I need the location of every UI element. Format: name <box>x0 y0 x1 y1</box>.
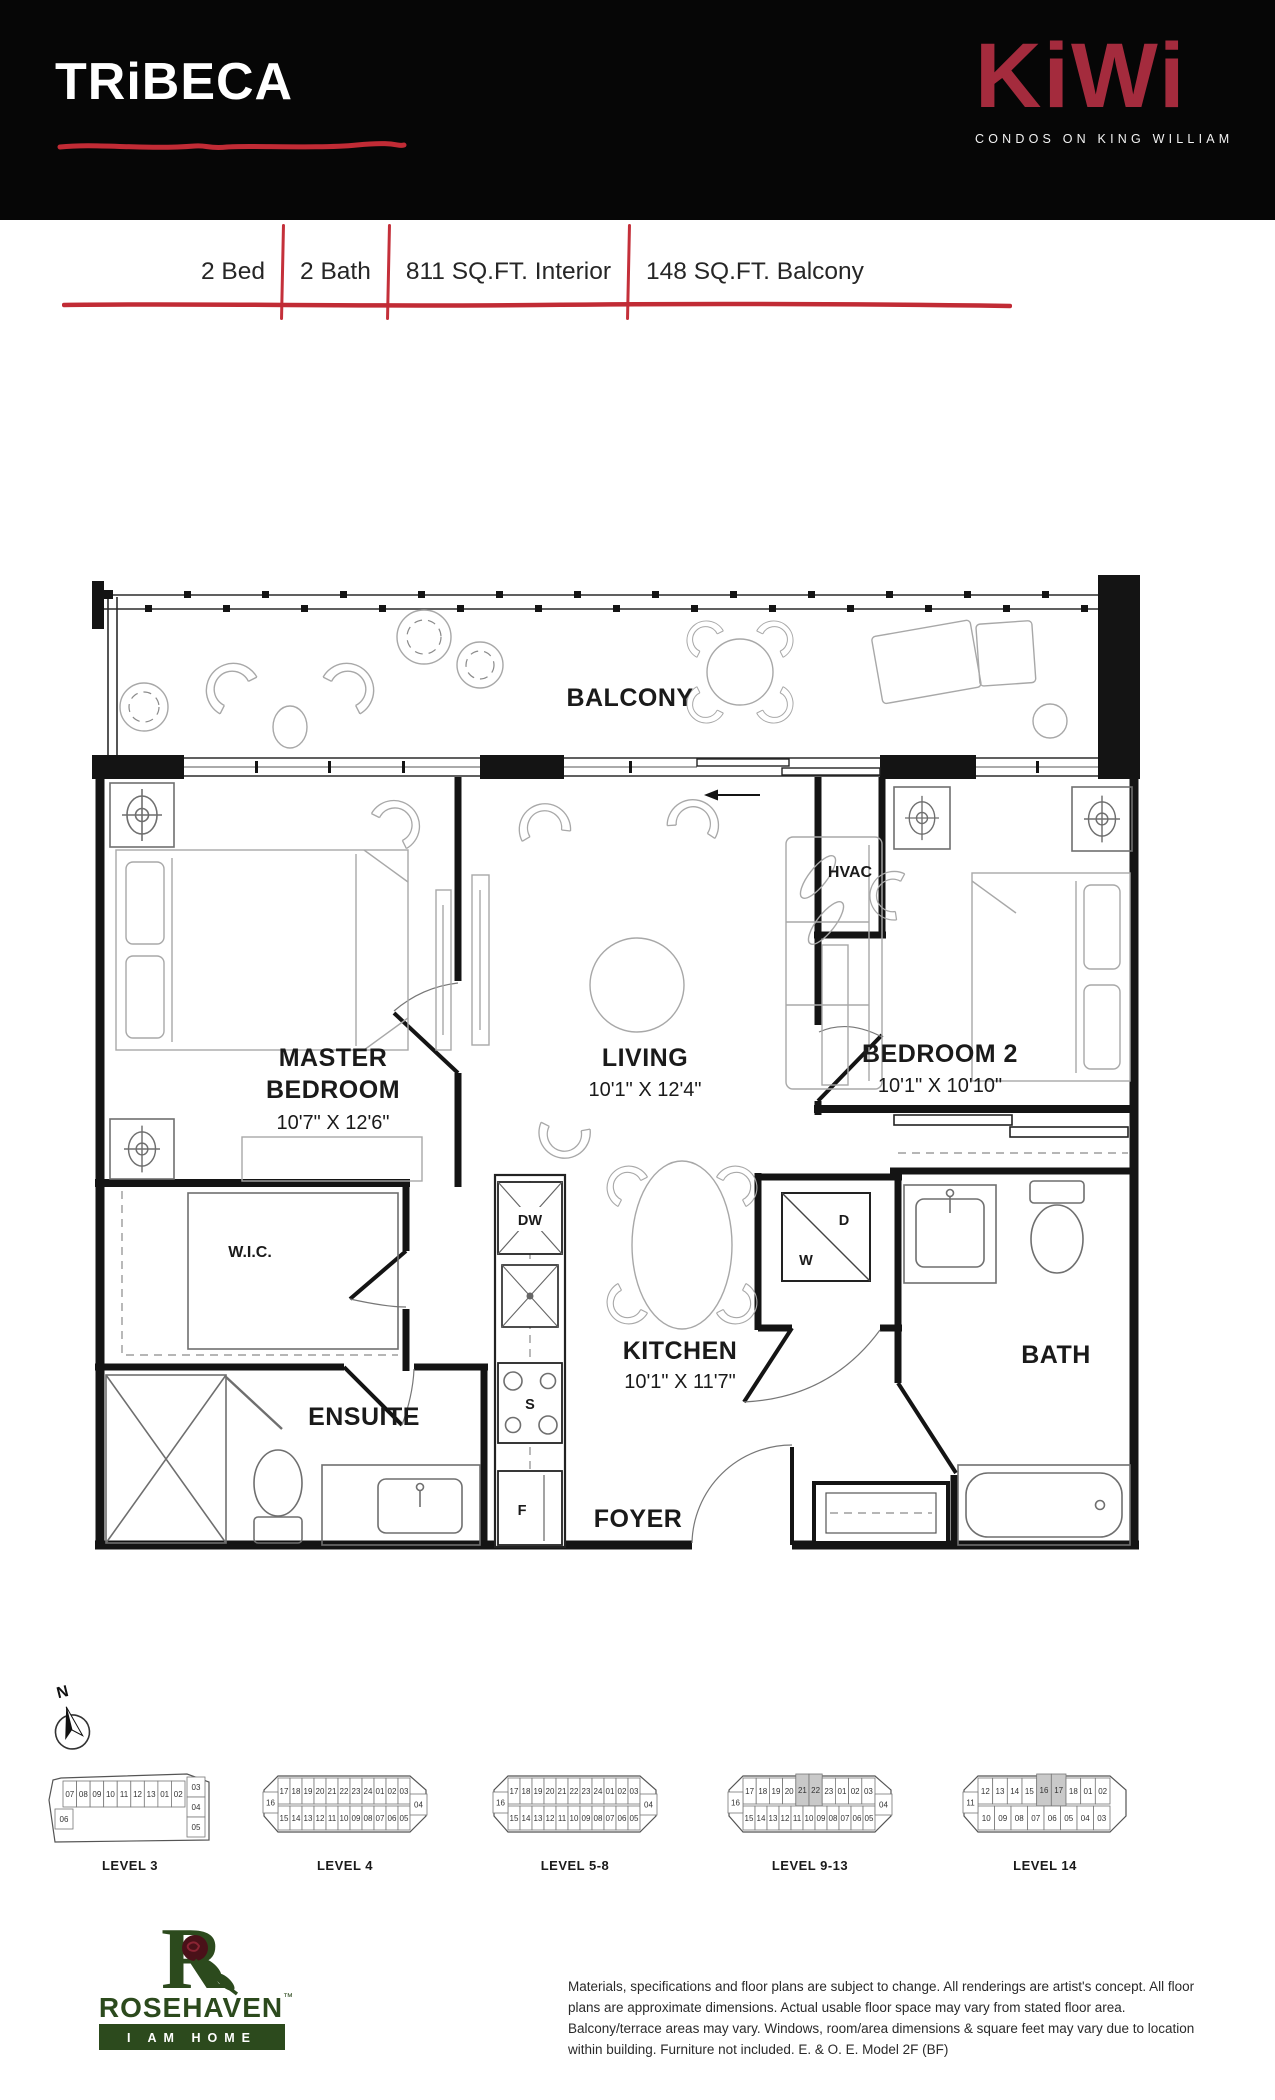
svg-text:13: 13 <box>996 1787 1005 1796</box>
coffee-table-icon <box>590 938 684 1032</box>
chair-icon <box>515 799 572 842</box>
room-label-balcony: BALCONY <box>566 684 693 712</box>
kiwi-logo-name: KiWi <box>975 30 1215 122</box>
svg-text:08: 08 <box>829 1814 838 1823</box>
patio-table-icon <box>707 639 773 705</box>
svg-text:09: 09 <box>817 1814 826 1823</box>
side-table-icon <box>1033 704 1067 738</box>
svg-text:23: 23 <box>824 1787 833 1796</box>
kiwi-logo-tagline: CONDOS ON KING WILLIAM <box>975 132 1215 146</box>
svg-text:18: 18 <box>292 1787 301 1796</box>
svg-text:10: 10 <box>570 1814 579 1823</box>
rosehaven-logo: R ROSEHAVEN ™ I AM HOME <box>95 1912 295 2054</box>
room-label-master-1: MASTER <box>279 1044 388 1072</box>
svg-text:14: 14 <box>757 1814 766 1823</box>
svg-text:18: 18 <box>1069 1787 1078 1796</box>
toilet-icon <box>254 1450 302 1543</box>
svg-text:05: 05 <box>400 1814 409 1823</box>
level-keyplan: 121314151617180102100908070605040311LEVE… <box>960 1768 1130 1873</box>
svg-text:20: 20 <box>316 1787 325 1796</box>
dining-table-icon <box>632 1161 732 1329</box>
svg-text:24: 24 <box>364 1787 373 1796</box>
svg-text:17: 17 <box>280 1787 289 1796</box>
svg-text:02: 02 <box>851 1787 860 1796</box>
room-label-master-2: BEDROOM <box>266 1076 400 1104</box>
chair-icon <box>666 794 724 839</box>
svg-text:04: 04 <box>879 1801 888 1810</box>
svg-text:16: 16 <box>266 1799 275 1808</box>
sliding-door-icon <box>697 759 880 801</box>
svg-text:06: 06 <box>60 1815 69 1824</box>
balcony-railing <box>92 575 1140 779</box>
dresser-icon <box>242 1137 422 1181</box>
wall-stub <box>92 581 104 629</box>
patio-chair-icon <box>679 613 724 658</box>
svg-text:08: 08 <box>1015 1814 1024 1823</box>
foyer: FOYER <box>594 1483 948 1543</box>
level-keyplan-label: LEVEL 5-8 <box>490 1858 660 1873</box>
spec-balcony: 148 SQ.FT. Balcony <box>630 258 880 286</box>
svg-text:09: 09 <box>582 1814 591 1823</box>
svg-text:22: 22 <box>570 1787 579 1796</box>
room-label-kitchen: KITCHEN <box>623 1337 738 1365</box>
svg-text:04: 04 <box>644 1801 653 1810</box>
level-keyplan-label: LEVEL 14 <box>960 1858 1130 1873</box>
plant-icon <box>457 642 503 688</box>
svg-text:03: 03 <box>400 1787 409 1796</box>
svg-text:01: 01 <box>838 1787 847 1796</box>
svg-text:07: 07 <box>1031 1814 1040 1823</box>
compass-north-label: N <box>55 1683 70 1702</box>
room-dims-master: 10'7" X 12'6" <box>276 1112 389 1134</box>
svg-text:14: 14 <box>1010 1787 1019 1796</box>
svg-text:11: 11 <box>328 1814 337 1823</box>
svg-text:23: 23 <box>582 1787 591 1796</box>
room-dims-living: 10'1" X 12'4" <box>588 1079 701 1101</box>
speaker-icon <box>1072 787 1132 851</box>
svg-text:05: 05 <box>192 1823 201 1832</box>
foyer-closet-icon <box>814 1483 948 1543</box>
svg-text:19: 19 <box>304 1787 313 1796</box>
plant-icon <box>397 610 451 664</box>
svg-text:19: 19 <box>534 1787 543 1796</box>
flyer-page: TRiBECA KiWi CONDOS ON KING WILLIAM 2 Be… <box>0 0 1275 2100</box>
svg-text:03: 03 <box>630 1787 639 1796</box>
svg-text:02: 02 <box>1098 1787 1107 1796</box>
svg-text:12: 12 <box>133 1790 142 1799</box>
kiwi-logo: KiWi CONDOS ON KING WILLIAM <box>975 30 1215 146</box>
balcony-furniture: BALCONY <box>120 609 1067 748</box>
svg-text:10: 10 <box>340 1814 349 1823</box>
svg-text:07: 07 <box>841 1814 850 1823</box>
hvac-closet: HVAC <box>828 864 873 881</box>
room-label-foyer: FOYER <box>594 1505 683 1533</box>
svg-text:18: 18 <box>758 1787 767 1796</box>
dresser-icon <box>822 945 848 1085</box>
svg-text:05: 05 <box>630 1814 639 1823</box>
svg-text:17: 17 <box>1054 1786 1063 1795</box>
svg-text:12: 12 <box>981 1787 990 1796</box>
svg-text:16: 16 <box>731 1799 740 1808</box>
svg-text:09: 09 <box>998 1814 1007 1823</box>
brand-title: TRiBECA <box>55 52 293 112</box>
floorplan-svg: BALCONY <box>92 425 1162 1575</box>
fridge-icon: F <box>498 1471 562 1545</box>
ensuite-bath: ENSUITE <box>106 1375 480 1545</box>
svg-text:12: 12 <box>546 1814 555 1823</box>
svg-text:08: 08 <box>594 1814 603 1823</box>
svg-text:06: 06 <box>388 1814 397 1823</box>
svg-text:09: 09 <box>92 1790 101 1799</box>
svg-text:08: 08 <box>79 1790 88 1799</box>
room-label-living: LIVING <box>602 1044 688 1072</box>
spec-baths: 2 Bath <box>284 258 387 286</box>
svg-text:11: 11 <box>120 1790 129 1799</box>
level-keyplan: 1718192021222324010203151413121110090807… <box>260 1768 430 1873</box>
svg-text:13: 13 <box>304 1814 313 1823</box>
dishwasher-icon: DW <box>498 1182 562 1254</box>
svg-text:14: 14 <box>292 1814 301 1823</box>
svg-text:01: 01 <box>1084 1787 1093 1796</box>
svg-text:13: 13 <box>769 1814 778 1823</box>
svg-text:20: 20 <box>785 1787 794 1796</box>
svg-text:DW: DW <box>518 1213 542 1229</box>
level-keyplan-label: LEVEL 4 <box>260 1858 430 1873</box>
chair-icon <box>371 790 430 849</box>
svg-text:10: 10 <box>805 1814 814 1823</box>
svg-text:02: 02 <box>388 1787 397 1796</box>
plant-icon <box>120 683 168 731</box>
rosehaven-name: ROSEHAVEN <box>99 1992 283 2023</box>
room-dims-bedroom2: 10'1" X 10'10" <box>878 1075 1002 1097</box>
svg-text:04: 04 <box>192 1803 201 1812</box>
svg-text:21: 21 <box>798 1786 807 1795</box>
speaker-icon <box>110 783 174 847</box>
sink-vanity-icon <box>322 1465 480 1545</box>
svg-text:09: 09 <box>352 1814 361 1823</box>
closet-icon <box>894 1115 1128 1153</box>
svg-text:02: 02 <box>618 1787 627 1796</box>
svg-text:23: 23 <box>352 1787 361 1796</box>
svg-text:22: 22 <box>811 1786 820 1795</box>
svg-text:15: 15 <box>280 1814 289 1823</box>
room-label-ensuite: ENSUITE <box>308 1403 420 1431</box>
room-label-bedroom2: BEDROOM 2 <box>862 1040 1018 1068</box>
svg-text:05: 05 <box>1064 1814 1073 1823</box>
walls <box>95 777 1139 1545</box>
level-keyplan: 07080910111213010206030405LEVEL 3 <box>45 1768 215 1873</box>
svg-text:11: 11 <box>558 1814 567 1823</box>
kitchen: DW S F KITCHE <box>495 1157 766 1547</box>
side-table-icon <box>273 706 307 748</box>
level-plans: 07080910111213010206030405LEVEL 31718192… <box>0 1768 1275 1888</box>
svg-text:01: 01 <box>160 1790 169 1799</box>
patio-chair-icon <box>756 686 801 731</box>
lounge-chair-icon <box>871 609 1042 709</box>
svg-text:15: 15 <box>510 1814 519 1823</box>
sink-vanity-icon <box>904 1185 996 1283</box>
svg-text:F: F <box>518 1503 527 1519</box>
spec-interior: 811 SQ.FT. Interior <box>390 258 627 286</box>
stove-icon: S <box>498 1363 562 1443</box>
svg-text:13: 13 <box>147 1790 156 1799</box>
patio-chair-icon <box>195 652 257 714</box>
svg-text:22: 22 <box>340 1787 349 1796</box>
svg-text:01: 01 <box>376 1787 385 1796</box>
washer-label: W <box>799 1253 813 1269</box>
rosehaven-tagline: I AM HOME <box>127 2031 257 2045</box>
compass-icon: N <box>50 1672 98 1772</box>
svg-text:04: 04 <box>414 1801 423 1810</box>
svg-text:S: S <box>525 1397 535 1413</box>
svg-text:06: 06 <box>618 1814 627 1823</box>
svg-text:18: 18 <box>522 1787 531 1796</box>
svg-text:03: 03 <box>864 1787 873 1796</box>
svg-text:15: 15 <box>1025 1787 1034 1796</box>
svg-text:13: 13 <box>534 1814 543 1823</box>
svg-text:06: 06 <box>853 1814 862 1823</box>
balcony-end-column <box>1098 575 1140 779</box>
walk-in-closet: W.I.C. <box>122 1191 398 1359</box>
disclaimer-text: Materials, specifications and floor plan… <box>568 1976 1218 2061</box>
svg-text:21: 21 <box>558 1787 567 1796</box>
bathtub-icon <box>958 1465 1130 1545</box>
level-keyplan-label: LEVEL 3 <box>45 1858 215 1873</box>
svg-text:03: 03 <box>1097 1814 1106 1823</box>
svg-text:14: 14 <box>522 1814 531 1823</box>
speaker-icon <box>894 787 950 849</box>
spec-underline-stroke <box>62 300 1012 310</box>
svg-text:03: 03 <box>192 1783 201 1792</box>
svg-text:07: 07 <box>606 1814 615 1823</box>
patio-chair-icon <box>322 652 384 714</box>
level-keyplan-label: LEVEL 9-13 <box>725 1858 895 1873</box>
svg-text:11: 11 <box>793 1814 802 1823</box>
svg-text:02: 02 <box>174 1790 183 1799</box>
speaker-icon <box>110 1119 174 1179</box>
svg-text:11: 11 <box>966 1799 975 1808</box>
level-keyplan: 1718192021222324010203151413121110090807… <box>490 1768 660 1873</box>
chair-icon <box>536 1122 591 1161</box>
svg-text:15: 15 <box>745 1814 754 1823</box>
room-label-hvac: HVAC <box>828 864 873 881</box>
svg-text:10: 10 <box>982 1814 991 1823</box>
svg-text:07: 07 <box>65 1790 74 1799</box>
brand-underline-stroke <box>57 138 407 154</box>
toilet-icon <box>1030 1181 1084 1273</box>
room-dims-kitchen: 10'1" X 11'7" <box>624 1371 736 1393</box>
svg-text:19: 19 <box>772 1787 781 1796</box>
svg-text:21: 21 <box>328 1787 337 1796</box>
svg-text:17: 17 <box>510 1787 519 1796</box>
svg-text:12: 12 <box>316 1814 325 1823</box>
svg-text:16: 16 <box>496 1799 505 1808</box>
svg-text:10: 10 <box>106 1790 115 1799</box>
dryer-label: D <box>839 1213 849 1229</box>
svg-text:01: 01 <box>606 1787 615 1796</box>
header-bar: TRiBECA KiWi CONDOS ON KING WILLIAM <box>0 0 1275 220</box>
svg-text:04: 04 <box>1081 1814 1090 1823</box>
master-bedroom: MASTER BEDROOM 10'7" X 12'6" <box>110 783 451 1181</box>
room-label-wic: W.I.C. <box>228 1244 272 1261</box>
svg-text:08: 08 <box>364 1814 373 1823</box>
bed-icon <box>116 850 408 1050</box>
svg-text:05: 05 <box>865 1814 874 1823</box>
svg-text:17: 17 <box>745 1787 754 1796</box>
level-keyplan: 1718192021222301020315141312111009080706… <box>725 1768 895 1873</box>
laundry-closet: D W <box>782 1193 870 1281</box>
room-label-bath: BATH <box>1021 1341 1091 1369</box>
window-wall <box>92 755 1140 801</box>
svg-text:07: 07 <box>376 1814 385 1823</box>
kitchen-sink-icon <box>502 1265 558 1327</box>
rosehaven-trademark: ™ <box>283 1992 293 2003</box>
patio-chair-icon <box>756 613 801 658</box>
svg-text:06: 06 <box>1048 1814 1057 1823</box>
svg-text:12: 12 <box>781 1814 790 1823</box>
svg-text:24: 24 <box>594 1787 603 1796</box>
spec-beds: 2 Bed <box>185 258 281 286</box>
svg-text:20: 20 <box>546 1787 555 1796</box>
svg-text:16: 16 <box>1040 1786 1049 1795</box>
